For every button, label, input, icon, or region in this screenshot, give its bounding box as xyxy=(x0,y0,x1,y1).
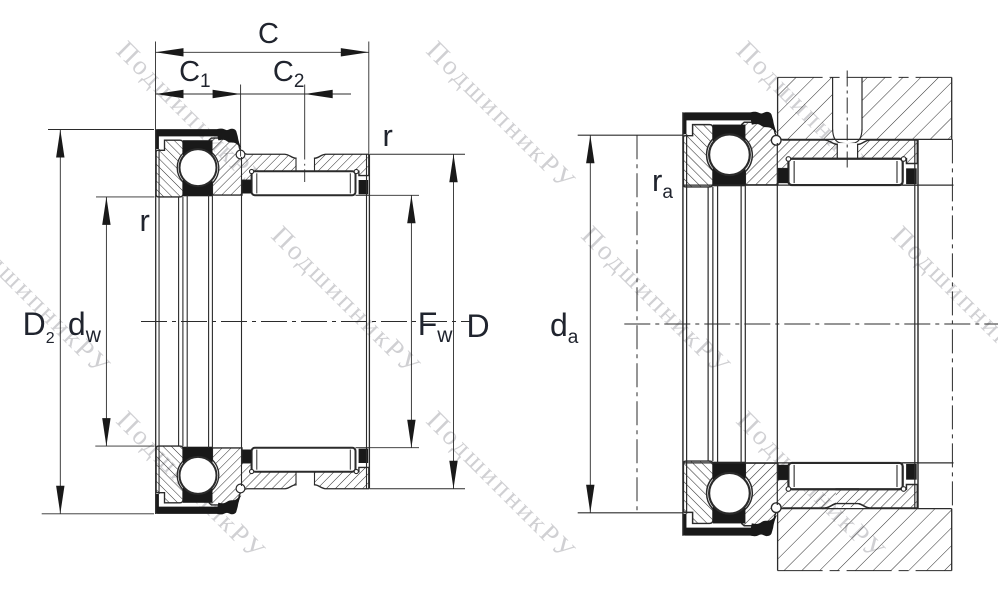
svg-text:r: r xyxy=(140,203,150,238)
svg-text:D: D xyxy=(467,308,490,344)
svg-text:r: r xyxy=(383,118,393,153)
svg-text:C: C xyxy=(258,18,279,50)
